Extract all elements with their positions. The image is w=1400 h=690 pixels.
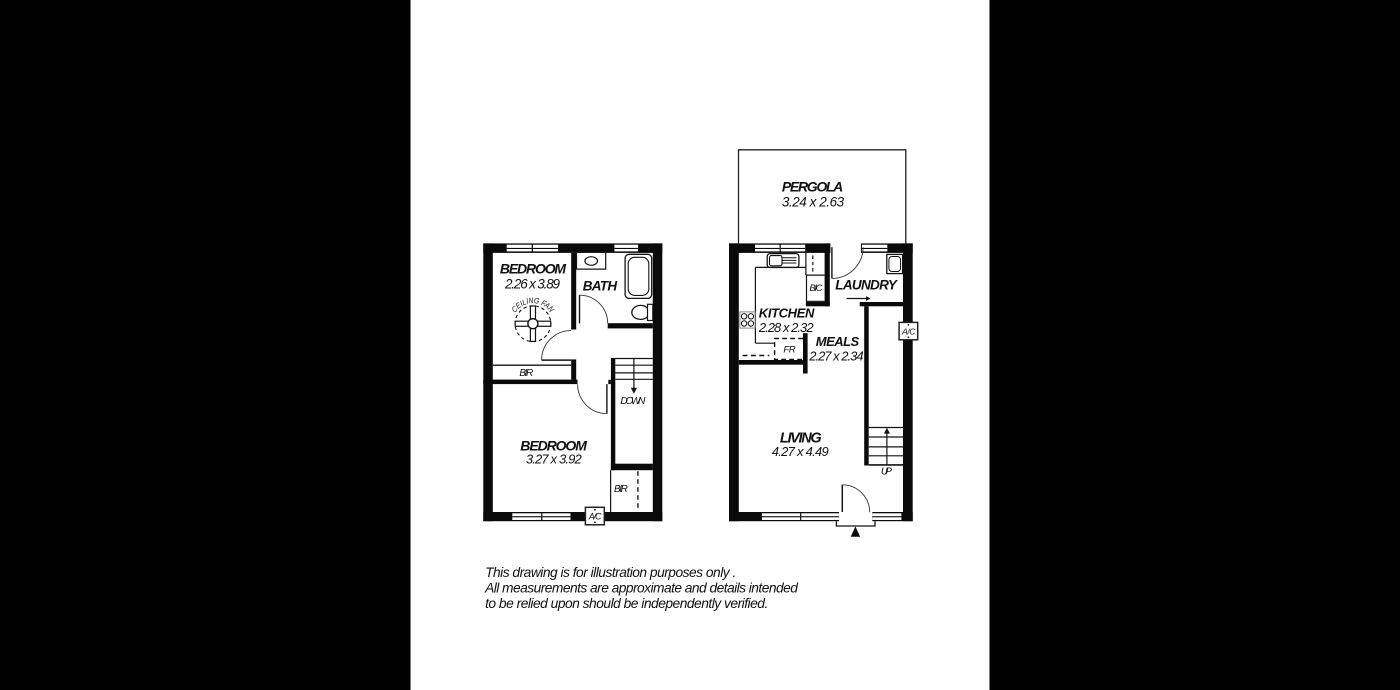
svg-text:BIR: BIR <box>614 484 628 495</box>
svg-text:UP: UP <box>881 466 892 477</box>
svg-text:2.28 x 2.32: 2.28 x 2.32 <box>758 320 814 335</box>
svg-text:LAUNDRY: LAUNDRY <box>835 278 899 293</box>
svg-text:A/C: A/C <box>901 327 916 337</box>
svg-text:KITCHEN: KITCHEN <box>759 305 815 320</box>
svg-text:BEDROOM: BEDROOM <box>500 260 567 276</box>
svg-text:A/C: A/C <box>588 512 602 522</box>
svg-text:BATH: BATH <box>583 278 618 293</box>
svg-text:3.24 x 2.63: 3.24 x 2.63 <box>782 195 845 210</box>
svg-text:DOWN: DOWN <box>620 396 646 407</box>
svg-text:BIR: BIR <box>519 368 533 379</box>
svg-text:All measurements are approxima: All measurements are approximate and det… <box>484 581 799 596</box>
svg-text:to be relied upon should be in: to be relied upon should be independentl… <box>485 596 768 611</box>
svg-text:This drawing is for illustrati: This drawing is for illustration purpose… <box>485 565 736 580</box>
svg-text:2.26 x 3.89: 2.26 x 3.89 <box>504 276 561 291</box>
svg-text:FR: FR <box>783 345 795 356</box>
svg-text:MEALS: MEALS <box>816 334 860 349</box>
svg-text:4.27 x 4.49: 4.27 x 4.49 <box>772 444 829 459</box>
svg-text:BIC: BIC <box>809 283 822 294</box>
svg-text:2.27 x 2.34: 2.27 x 2.34 <box>808 348 863 363</box>
svg-text:3.27 x 3.92: 3.27 x 3.92 <box>526 451 583 466</box>
svg-text:PERGOLA: PERGOLA <box>782 179 843 195</box>
